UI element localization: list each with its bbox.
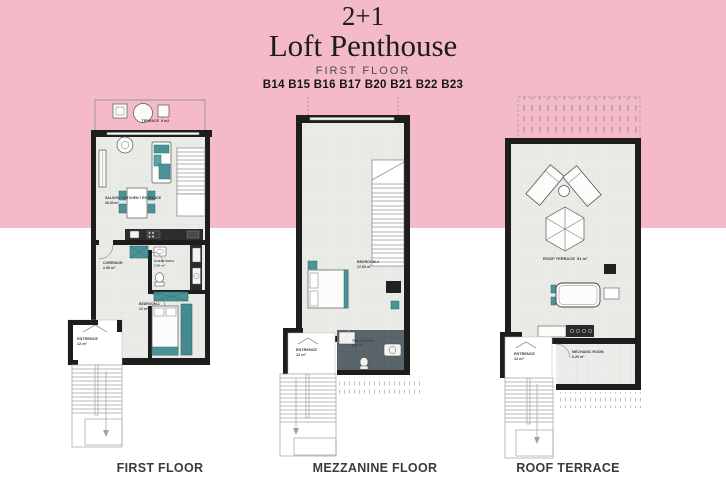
floorplan-sheet: 2+1 Loft Penthouse FIRST FLOOR B14 B15 B… [0, 0, 726, 485]
staircase [72, 365, 122, 447]
room-label: CORRIDOR [103, 261, 123, 265]
washbasin-icon [154, 247, 166, 256]
title-name: Loft Penthouse [0, 30, 726, 61]
window [310, 118, 394, 121]
pergola [518, 97, 640, 140]
outdoor-kitchen [538, 325, 594, 337]
title-block: 2+1 Loft Penthouse FIRST FLOOR B14 B15 B… [0, 0, 726, 91]
room-label: SALOON + KITCHEN + ENTRANCE [105, 196, 162, 200]
caption-first-floor: FIRST FLOOR [95, 461, 225, 475]
room-area: 2.90 m² [103, 266, 116, 270]
room-area: 51 m² [577, 256, 588, 261]
jacuzzi [551, 283, 600, 307]
bed [152, 304, 192, 355]
toilet-bath [337, 330, 404, 370]
stool [391, 301, 399, 309]
title-floor-label: FIRST FLOOR [0, 65, 726, 77]
first-floor-plan: TERRACE 9 m2 [55, 92, 220, 465]
room-area: 3.00 m² [154, 264, 165, 268]
room-label: ENTRENCE [296, 348, 317, 352]
toilet-icon [360, 357, 368, 366]
kitchen-counter [125, 229, 203, 240]
room-label: ENTRENCE [514, 352, 535, 356]
terrace-area: TERRACE 9 m2 [95, 100, 205, 131]
fridge-icon [187, 231, 199, 238]
title-block-numbers: B14 B15 B16 B17 B20 B21 B22 B23 [0, 79, 726, 91]
side-table-icon [559, 186, 570, 197]
terrace-chair-icon [113, 104, 127, 118]
washbasin-icon [384, 344, 401, 356]
caption-mezzanine-floor: MEZZANINE FLOOR [310, 461, 440, 475]
hatch-band [338, 377, 422, 397]
storage-box [604, 288, 619, 299]
toilet-icon [155, 282, 164, 286]
staircase [505, 378, 553, 458]
staircase [280, 374, 336, 456]
room-area: 12 m² [296, 353, 307, 357]
pillow-icon [154, 308, 164, 316]
hatch-band [556, 392, 641, 408]
sink-icon [130, 231, 139, 238]
title-type: 2+1 [0, 2, 726, 30]
ac-unit [386, 281, 401, 293]
caption-roof-terrace: ROOF TERRACE [503, 461, 633, 475]
bed [308, 270, 348, 308]
window [107, 133, 199, 135]
room-label: ROOF TERRACE [543, 256, 575, 261]
room-label: BEDROOM-2 [357, 260, 379, 264]
ac-unit [604, 264, 616, 274]
room-area: 12 m² [77, 342, 88, 346]
sofa [152, 142, 171, 183]
room-label: GUEST BATH [154, 259, 175, 263]
room-label: ENTRENCE [77, 337, 98, 341]
room-area: 6.20 m² [572, 355, 585, 359]
room-area: 12 m² [139, 307, 149, 311]
pillow-icon [310, 273, 318, 288]
interior-staircase [372, 160, 404, 266]
mezzanine-floor-plan: BEDROOM-2 17.60 m² ENTRENCE 12 m² TOILET… [272, 92, 427, 465]
armchair [117, 137, 133, 153]
terrace-chair-icon [158, 105, 169, 117]
roof-terrace-plan: ROOF TERRACE 51 m² [488, 92, 653, 465]
room-area: 12 m² [514, 357, 525, 361]
room-area: 6.90 m² [352, 344, 363, 348]
room-area: 9 m2 [161, 119, 169, 123]
room-label: TOILET+BATH [352, 339, 374, 343]
interior-staircase [177, 148, 205, 216]
nightstand [308, 261, 317, 269]
washer-icon [193, 268, 201, 284]
room-label: BEDROOM-1 [139, 302, 160, 306]
pillow-icon [166, 308, 176, 316]
pillow-icon [310, 291, 318, 306]
entrance-hall [505, 337, 552, 378]
room-label: MECHANIC ROOM [572, 350, 604, 354]
room-area: 17.60 m² [357, 265, 372, 269]
room-label: TERRACE [142, 119, 160, 123]
room-area: 30.30 m² [105, 201, 119, 205]
